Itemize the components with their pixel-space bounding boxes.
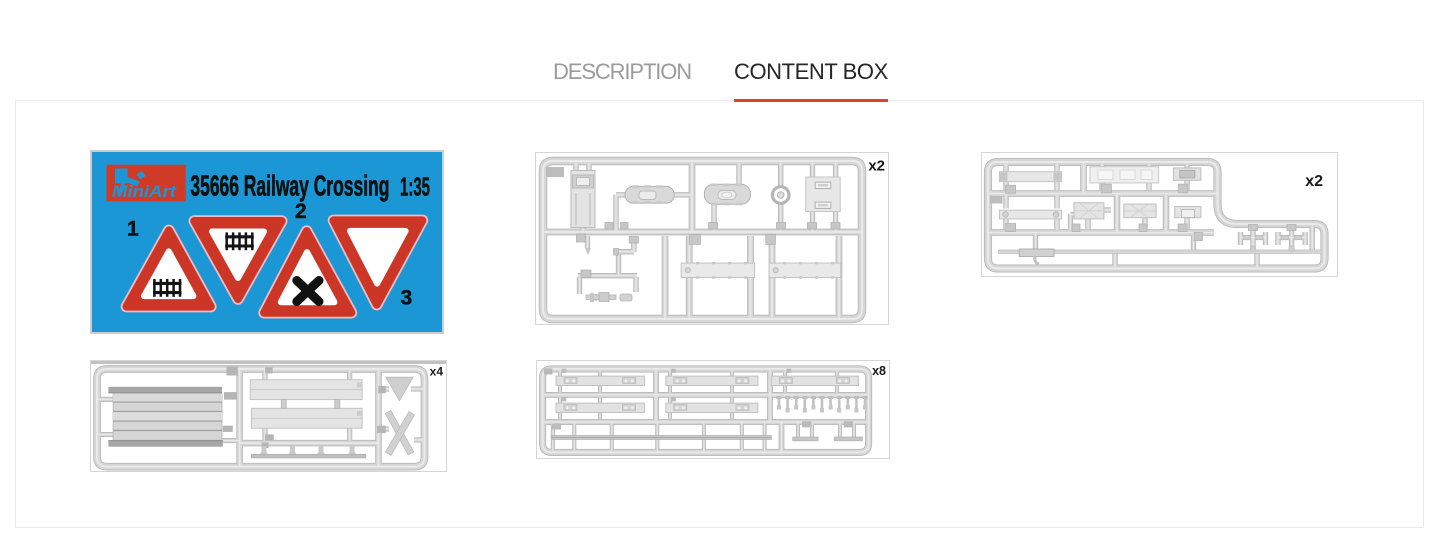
svg-text:3: 3 — [401, 287, 413, 310]
svg-text:35666 Railway Crossing: 35666 Railway Crossing — [190, 171, 389, 203]
svg-text:x2: x2 — [1305, 173, 1323, 190]
svg-text:1:35: 1:35 — [400, 172, 430, 202]
svg-text:x8: x8 — [872, 364, 886, 378]
svg-text:1: 1 — [127, 218, 139, 241]
svg-text:MiniArt: MiniArt — [112, 182, 177, 201]
svg-text:x4: x4 — [430, 365, 444, 379]
svg-text:2: 2 — [295, 200, 307, 223]
svg-text:x2: x2 — [868, 158, 885, 175]
